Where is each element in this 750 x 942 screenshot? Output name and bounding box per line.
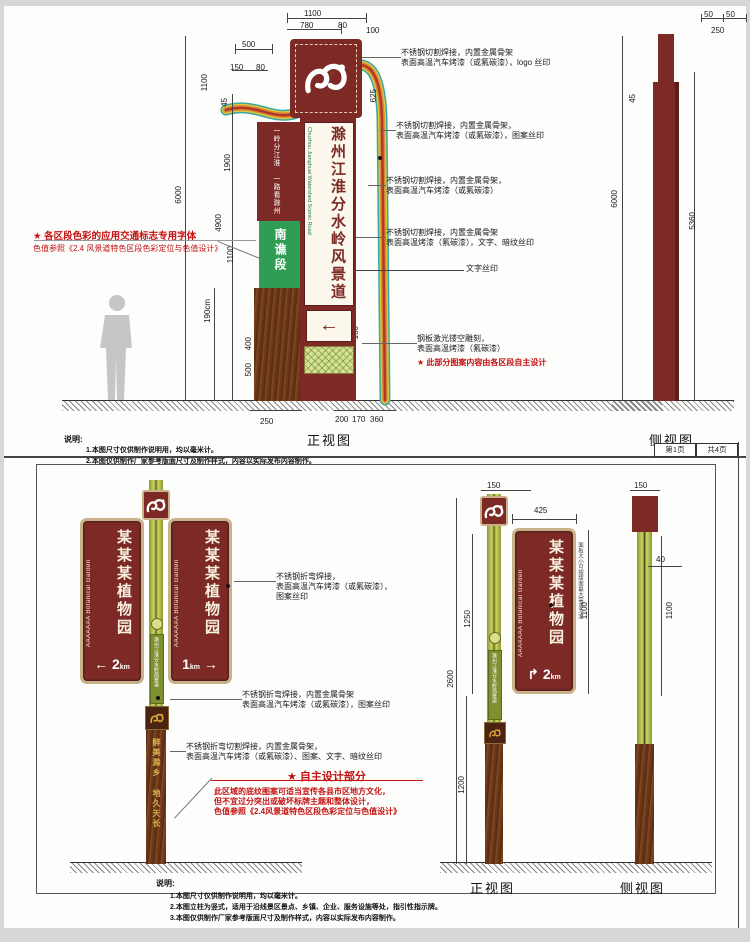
annotation-line: 表面高温汽车烤漆（或氟碳漆），logo 丝印 bbox=[401, 58, 550, 68]
dimension-line bbox=[576, 514, 577, 524]
dim-label: 80 bbox=[338, 21, 347, 30]
dim-label: 200 bbox=[335, 415, 348, 424]
annotation-line: 钢板激光镂空雕刻， bbox=[417, 334, 505, 344]
left-pole-wood: 醉美滁乡 地久天长 bbox=[146, 730, 166, 864]
leader-line bbox=[170, 699, 242, 700]
dim-label: 250 bbox=[711, 26, 724, 35]
annotation: 文字丝印 bbox=[466, 264, 498, 274]
blade-direction: ← 2km bbox=[83, 656, 141, 676]
bottom-side-view-label: 侧视图 bbox=[620, 878, 665, 897]
bottom-front-view-label: 正视图 bbox=[470, 878, 515, 897]
leader-dot bbox=[378, 156, 382, 160]
dim-label: 150 bbox=[230, 63, 243, 72]
ground-hatch-top-right bbox=[612, 400, 734, 411]
dimension-line bbox=[701, 14, 702, 22]
panel-separator bbox=[4, 456, 746, 458]
annotation-line: 表面高温汽车烤漆（或氟碳漆），图案丝印 bbox=[396, 131, 544, 141]
left-pole-small-plate bbox=[145, 706, 169, 730]
dimension-line bbox=[466, 696, 467, 864]
annotation-line: 表面高温烤漆（氟碳漆），文字、暗纹丝印 bbox=[386, 238, 534, 248]
dimension-line bbox=[211, 780, 423, 781]
sign-english-text: Chuzhou Jianghuai Watershed Scenic Road bbox=[306, 127, 312, 301]
dim-label: 170 bbox=[352, 415, 365, 424]
dim-label: 50 bbox=[726, 10, 735, 19]
sign-green-section: 南谯段 bbox=[259, 221, 300, 288]
dimension-line bbox=[366, 13, 367, 23]
mini-logo-icon bbox=[146, 497, 166, 513]
right-pole-small-plate bbox=[484, 722, 506, 744]
left-pole-midlogo bbox=[151, 618, 163, 630]
bottom-red-paragraph: 此区域的底纹图案可适当宣传各县市区地方文化，但不宜过分突出或破坏标牌主题和整体设… bbox=[214, 787, 401, 817]
blade-distance: 2 bbox=[112, 656, 120, 672]
leader-dot bbox=[226, 584, 230, 588]
pole-plate-text: 滁州江淮分水岭风景道 bbox=[153, 637, 160, 687]
dimension-line bbox=[272, 44, 273, 54]
watershed-logo-icon bbox=[304, 57, 348, 97]
dim-label: 150 bbox=[634, 481, 647, 490]
leader-line bbox=[234, 581, 276, 582]
dimension-line bbox=[356, 270, 464, 271]
blade-distance: 2 bbox=[543, 666, 551, 682]
dim-label: 1200 bbox=[457, 776, 466, 794]
dim-label: 190cm bbox=[203, 299, 212, 323]
right-pole-logo-plate bbox=[480, 496, 508, 526]
sign-left-strip: 一岭分江淮 一路看滁州 bbox=[257, 122, 300, 221]
ground-hatch-bottom-right bbox=[440, 862, 712, 873]
sign-main-blade: Chuzhou Jianghuai Watershed Scenic Road … bbox=[300, 114, 356, 401]
annotation-line: 图案丝印 bbox=[276, 592, 392, 602]
leader-line bbox=[356, 237, 386, 238]
leader-line bbox=[170, 751, 186, 752]
blade-unit: km bbox=[551, 674, 561, 681]
dim-label: 50 bbox=[704, 10, 713, 19]
right-pole-plate-strip: 滁州江淮分水岭风景道 bbox=[488, 650, 502, 720]
note-line: 2.本图立柱为竖式，适用于沿线景区景点、乡镇、企业、服务设施等处，指引性指示牌。 bbox=[170, 902, 442, 913]
dim-label: 2600 bbox=[446, 670, 455, 688]
dimension-line bbox=[456, 498, 457, 864]
blade-english: AAAAAAA Botanical Garden bbox=[86, 527, 92, 647]
dimension-line bbox=[214, 288, 215, 400]
dimension-line bbox=[235, 44, 236, 54]
blade-direction: 1km → bbox=[171, 656, 229, 676]
top-red-note-line2: 色值参照《2.4 风景道特色区段色彩定位与色值设计》 bbox=[33, 243, 222, 254]
annotation-line: 表面高温汽车烤漆（或氟碳漆）、图案、文字、暗纹丝印 bbox=[186, 752, 382, 762]
dim-label: 5360 bbox=[688, 212, 697, 230]
right-pole-midlogo bbox=[489, 632, 501, 644]
sign-arrow: ← bbox=[319, 314, 339, 336]
leader-dot bbox=[549, 603, 553, 607]
bottom-notes-title: 说明: bbox=[156, 878, 175, 889]
pole-plate-text: 滁州江淮分水岭风景道 bbox=[491, 653, 498, 703]
annotation-line: 不锈钢折弯焊接，内置金属骨架 bbox=[242, 690, 390, 700]
leader-line bbox=[380, 130, 396, 131]
gold-logo-icon bbox=[489, 728, 501, 738]
blade-arrow: → bbox=[204, 656, 218, 672]
sign-strip-text: 一岭分江淮 一路看滁州 bbox=[271, 127, 281, 217]
page-tab-left: 第1页 bbox=[654, 443, 696, 457]
dim-label: 80 bbox=[256, 63, 265, 72]
dim-label: 4900 bbox=[214, 214, 223, 232]
blade-chinese: 某某某植物园 bbox=[545, 539, 566, 647]
dim-label: 250 bbox=[260, 417, 273, 426]
dimension-line bbox=[746, 14, 747, 22]
annotation: 不锈钢折弯切割焊接，内置金属骨架，表面高温汽车烤漆（或氟碳漆）、图案、文字、暗纹… bbox=[186, 742, 382, 762]
annotation-line: 不锈钢切割焊接，内置金属骨架 bbox=[386, 228, 534, 238]
dimension-line bbox=[481, 490, 531, 491]
leader-line bbox=[362, 343, 417, 344]
note-line: 3.本图仅供制作厂家参考版面尺寸及制作样式，内容以实际发布内容制作。 bbox=[170, 913, 442, 924]
dim-label: 780 bbox=[300, 21, 313, 30]
section-label: 南谯段 bbox=[272, 228, 289, 273]
dimension-line bbox=[512, 514, 513, 524]
single-blade: AAAAAAA Botanical Garden 某某某植物园 ↱ 2km bbox=[512, 528, 576, 694]
dim-label: 625 bbox=[369, 89, 378, 102]
dimension-line bbox=[622, 36, 623, 400]
dim-label: 6000 bbox=[610, 190, 619, 208]
blade-distance: 1 bbox=[182, 656, 190, 672]
dimension-line bbox=[334, 410, 396, 411]
gold-logo-icon bbox=[150, 712, 164, 724]
annotation-line: 不锈钢折弯焊接， bbox=[276, 572, 392, 582]
pole-slogan: 醉美滁乡 地久天长 bbox=[151, 738, 162, 829]
right-margin-line bbox=[738, 442, 739, 928]
top-red-note-bottom: ★ 此部分图案内容由各区段自主设计 bbox=[417, 357, 546, 368]
dim-label: 1900 bbox=[223, 154, 232, 172]
dim-label: 360 bbox=[370, 415, 383, 424]
bottom-side-view-pole bbox=[637, 532, 652, 744]
annotation: 不锈钢折弯焊接，表面高温汽车烤漆（或氟碳漆），图案丝印 bbox=[276, 572, 392, 602]
annotation: 钢板激光镂空雕刻，表面高温烤漆（氟碳漆） bbox=[417, 334, 505, 354]
annotation-line: 表面高温汽车烤漆（或氟碳漆）， bbox=[276, 582, 392, 592]
annotation-line: 文字丝印 bbox=[466, 264, 498, 274]
annotation-line: 不锈钢切割焊接，内置金属骨架， bbox=[386, 176, 506, 186]
bottom-red-title: ★ 自主设计部分 bbox=[287, 768, 366, 784]
dim-label: 45 bbox=[628, 94, 637, 103]
dim-label: 6000 bbox=[174, 186, 183, 204]
sign-header-logo-box bbox=[290, 39, 362, 118]
blade-direction: ↱ 2km bbox=[515, 666, 573, 686]
blade-english: AAAAAAA Botanical Garden bbox=[518, 537, 524, 657]
sign-arrow-box: ← bbox=[306, 310, 352, 342]
dim-label: 45 bbox=[220, 98, 229, 107]
dim-label: 100 bbox=[366, 26, 379, 35]
annotation: 不锈钢切割焊接，内置金属骨架表面高温汽车烤漆（或氟碳漆），logo 丝印 bbox=[401, 48, 550, 68]
dim-label: 40 bbox=[656, 555, 665, 564]
annotation-line: 不锈钢折弯切割焊接，内置金属骨架， bbox=[186, 742, 382, 752]
left-pole-plate-strip: 滁州江淮分水岭风景道 bbox=[150, 634, 164, 704]
drawing-canvas: 一岭分江淮 一路看滁州 南谯段 Chuzhou Jianghuai Waters… bbox=[4, 6, 746, 928]
dimension-line bbox=[287, 18, 367, 19]
side-view-pole-cap bbox=[658, 34, 674, 82]
dim-label: 1100 bbox=[580, 602, 589, 619]
ground-hatch-bottom-left bbox=[70, 862, 302, 873]
blade-unit: km bbox=[120, 664, 130, 671]
leader-line bbox=[368, 185, 386, 186]
leader-dot bbox=[156, 696, 160, 700]
dimension-line bbox=[287, 29, 342, 30]
dimension-line bbox=[287, 13, 288, 23]
dimension-line bbox=[185, 36, 186, 400]
dim-label: 1100 bbox=[200, 74, 209, 91]
sign-wood-pole bbox=[254, 288, 301, 401]
dim-label: 1100 bbox=[304, 9, 321, 18]
annotation-line: 表面高温汽车烤漆（或氟碳漆），图案丝印 bbox=[242, 700, 390, 710]
dimension-line bbox=[694, 72, 695, 400]
annotation: 不锈钢切割焊接，内置金属骨架，表面高温汽车烤漆（或氟碳漆） bbox=[386, 176, 506, 196]
top-notes-title: 说明: bbox=[64, 434, 83, 445]
left-blade-east: AAAAAAA Botanical Garden 某某某植物园 1km → bbox=[168, 518, 232, 684]
dim-label: 1100 bbox=[665, 602, 674, 619]
dimension-line bbox=[630, 490, 660, 491]
dim-label: 150 bbox=[487, 481, 500, 490]
annotation: 不锈钢切割焊接，内置金属骨架，表面高温汽车烤漆（或氟碳漆），图案丝印 bbox=[396, 121, 544, 141]
dimension-line bbox=[235, 49, 273, 50]
blade-arrow: ← bbox=[94, 656, 108, 672]
note-line: 但不宜过分突出或破坏标牌主题和整体设计， bbox=[214, 797, 401, 807]
dimension-line bbox=[250, 410, 302, 411]
annotation-line: 不锈钢切割焊接，内置金属骨架 bbox=[401, 48, 550, 58]
leader-diagonal-top bbox=[218, 241, 263, 260]
dimension-line bbox=[34, 240, 256, 241]
dimension-line bbox=[723, 14, 724, 22]
mini-logo-icon bbox=[484, 503, 504, 519]
sign-laser-panel bbox=[304, 346, 354, 374]
note-line: 色值参照《2.4风景道特色区段色彩定位与色值设计》 bbox=[214, 807, 401, 817]
sign-main-text: 滁州江淮分水岭风景道 bbox=[327, 126, 348, 301]
blade-english: AAAAAAA Botanical Garden bbox=[174, 527, 180, 647]
dim-label: 500 bbox=[242, 40, 255, 49]
annotation-line: 不锈钢切割焊接，内置金属骨架， bbox=[396, 121, 544, 131]
blade-arrow: ↱ bbox=[527, 666, 539, 682]
sign-white-panel: Chuzhou Jianghuai Watershed Scenic Road … bbox=[304, 122, 354, 306]
dimension-line bbox=[648, 566, 682, 567]
annotation: 不锈钢折弯焊接，内置金属骨架表面高温汽车烤漆（或氟碳漆），图案丝印 bbox=[242, 690, 390, 710]
bottom-side-view-wood bbox=[635, 744, 654, 864]
left-pole-logo-plate bbox=[142, 490, 170, 520]
dimension-line bbox=[512, 519, 577, 520]
blade-chinese: 某某某植物园 bbox=[201, 529, 222, 637]
dim-label: 400 bbox=[244, 337, 253, 350]
bottom-side-view-cap bbox=[632, 496, 658, 532]
left-blade-west: AAAAAAA Botanical Garden 某某某植物园 ← 2km bbox=[80, 518, 144, 684]
note-line: 此区域的底纹图案可适当宣传各县市区地方文化， bbox=[214, 787, 401, 797]
leader-line bbox=[356, 57, 401, 58]
person-silhouette bbox=[99, 294, 135, 401]
note-line: 1.本图尺寸仅供制作说明用，均以毫米计。 bbox=[170, 891, 442, 902]
dim-label: 1250 bbox=[463, 610, 472, 628]
side-view-pole-body bbox=[653, 82, 679, 401]
dim-label: 500 bbox=[244, 363, 253, 376]
annotation-line: 表面高温汽车烤漆（或氟碳漆） bbox=[386, 186, 506, 196]
note-line: 1.本图尺寸仅供制作说明用，均以毫米计。 bbox=[86, 445, 316, 456]
annotation-line: 表面高温烤漆（氟碳漆） bbox=[417, 344, 505, 354]
blade-unit: km bbox=[190, 664, 200, 671]
blade-chinese: 某某某植物园 bbox=[113, 529, 134, 637]
dimension-line bbox=[472, 534, 473, 694]
right-pole-wood bbox=[485, 744, 503, 864]
bottom-notes: 1.本图尺寸仅供制作说明用，均以毫米计。2.本图立柱为竖式，适用于沿线景区景点、… bbox=[170, 891, 442, 924]
page-tab-right: 共4页 bbox=[696, 443, 738, 457]
dim-label: 425 bbox=[534, 506, 547, 515]
annotation: 不锈钢切割焊接，内置金属骨架表面高温烤漆（氟碳漆），文字、暗纹丝印 bbox=[386, 228, 534, 248]
